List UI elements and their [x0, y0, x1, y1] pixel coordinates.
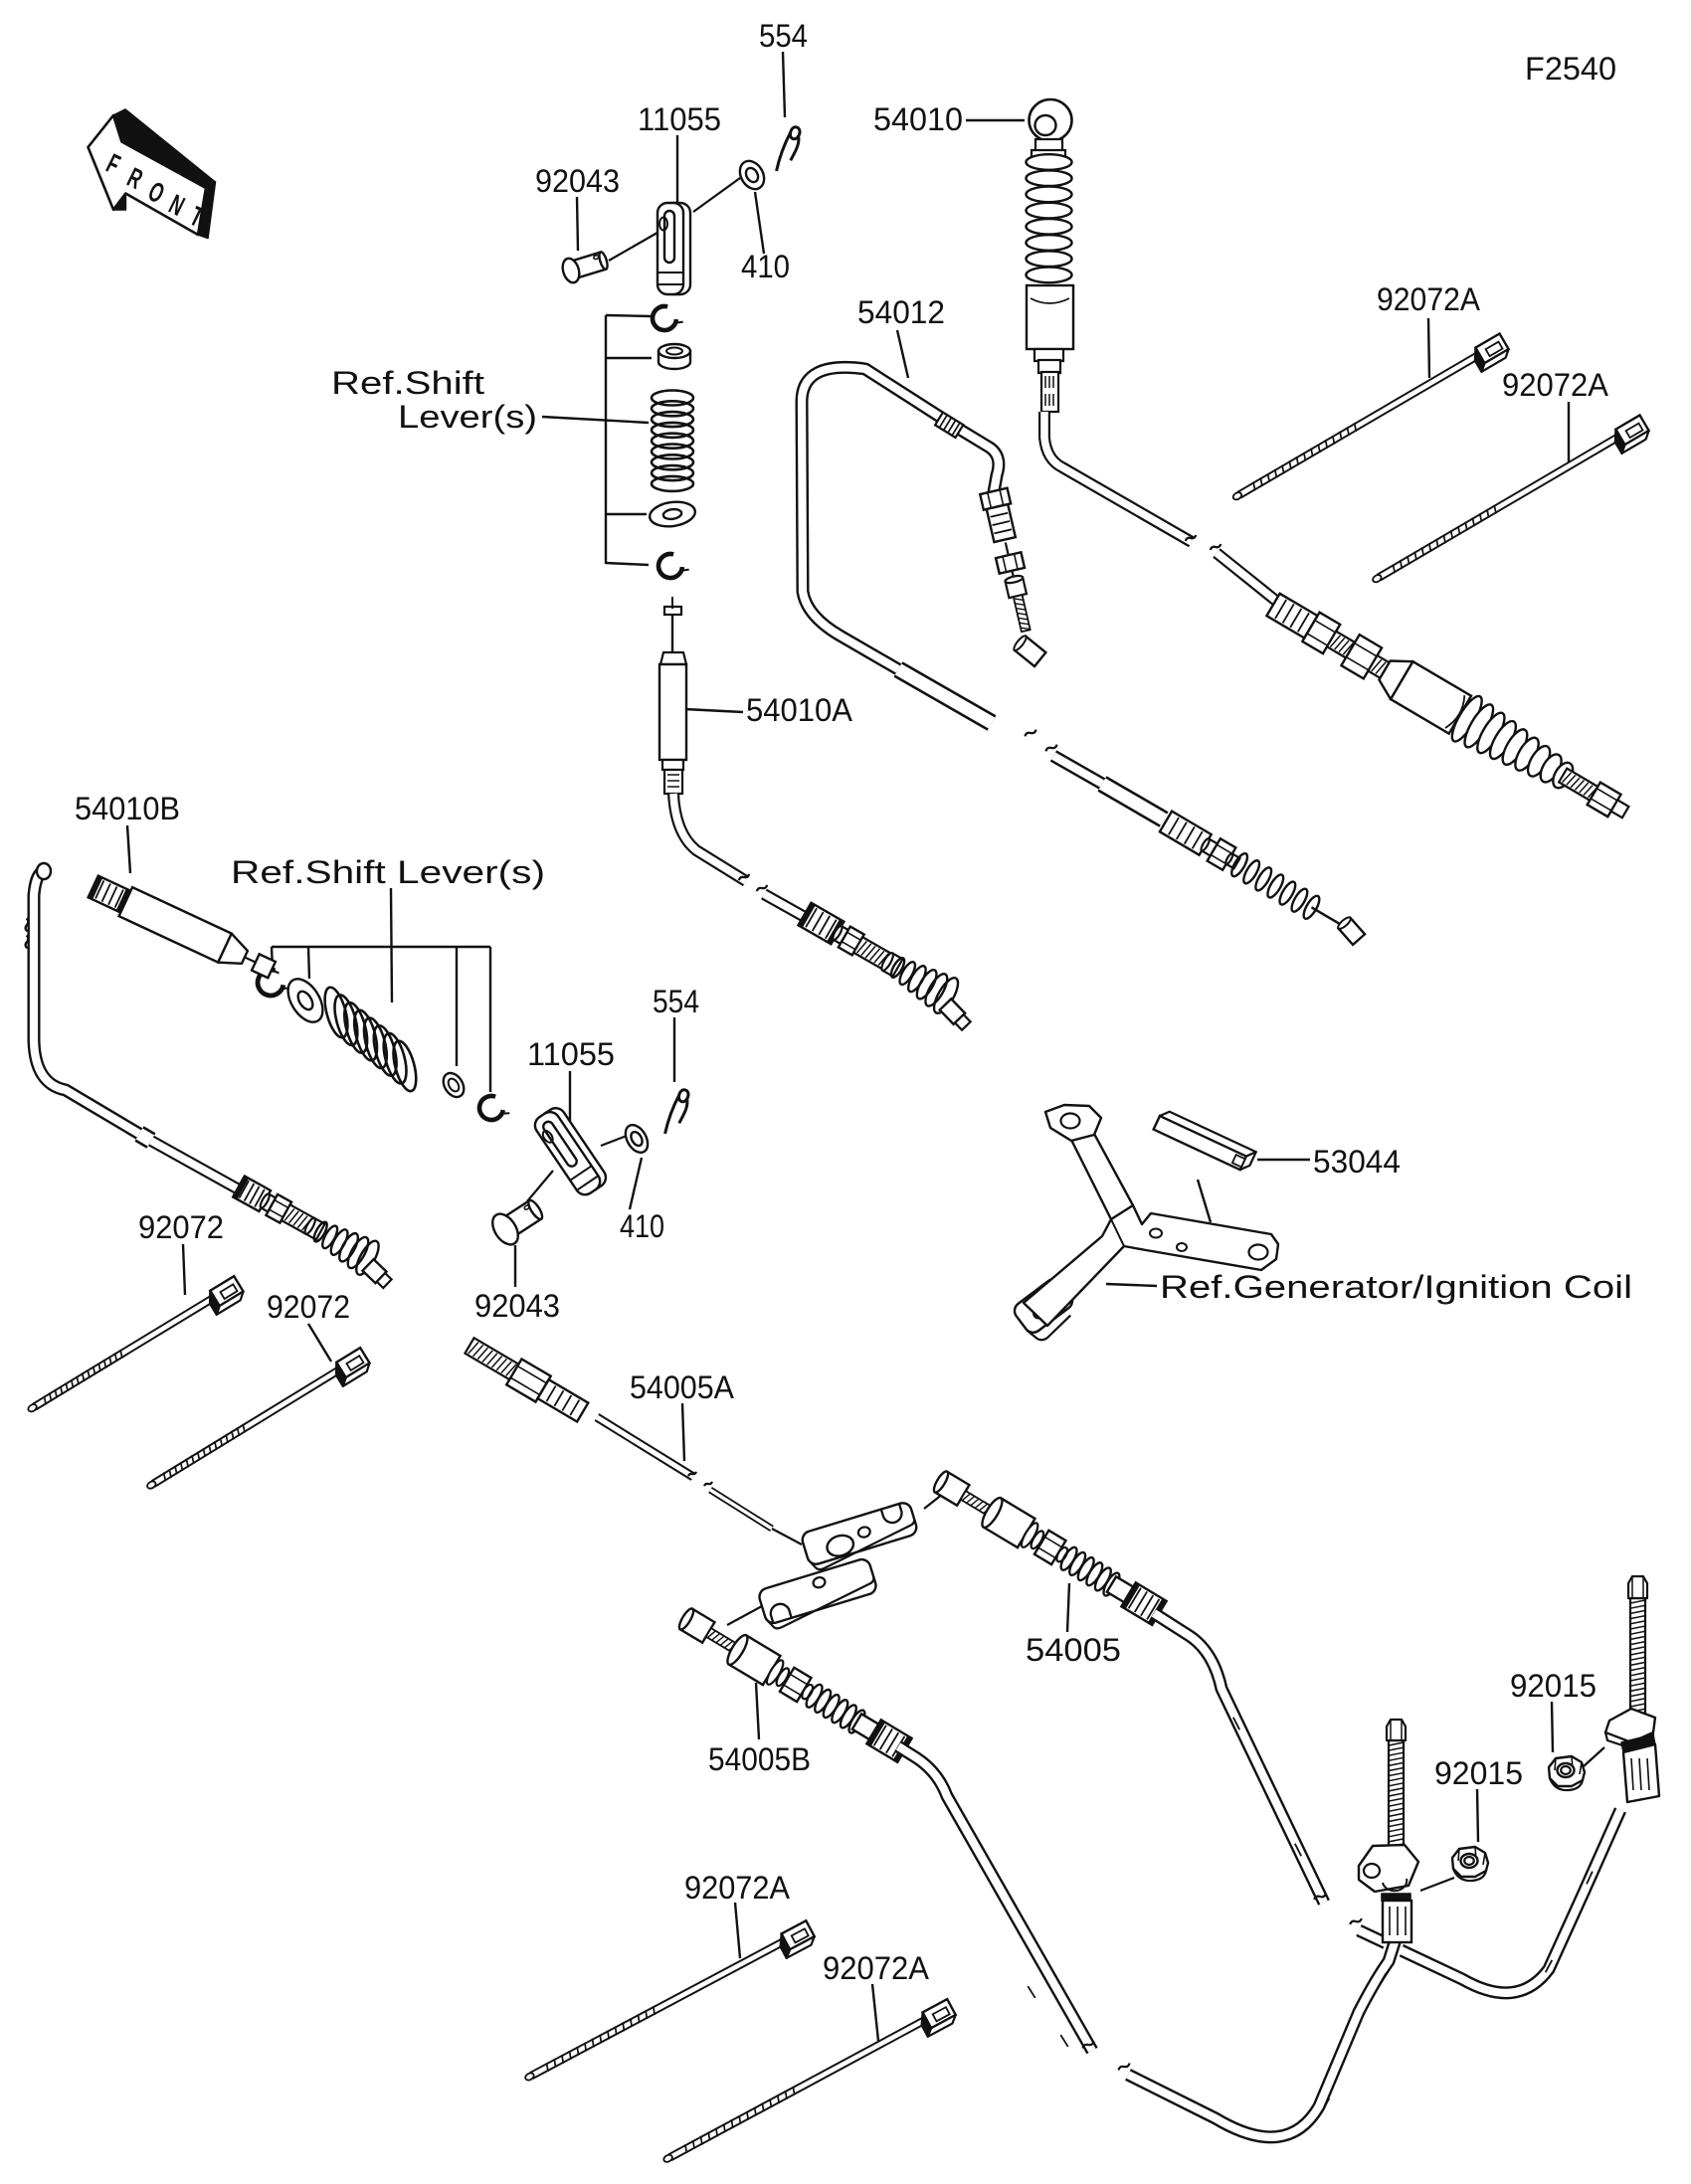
svg-text:F2540: F2540: [1525, 51, 1616, 87]
svg-text:92072A: 92072A: [1502, 367, 1609, 403]
svg-text:54005A: 54005A: [630, 1369, 735, 1405]
svg-text:54010A: 54010A: [746, 692, 853, 728]
svg-text:54005B: 54005B: [708, 1741, 811, 1777]
svg-text:11055: 11055: [527, 1036, 615, 1072]
svg-text:92072A: 92072A: [1377, 281, 1481, 317]
svg-text:410: 410: [620, 1208, 664, 1244]
svg-text:Ref.Generator/Ignition Coil: Ref.Generator/Ignition Coil: [1160, 1269, 1632, 1305]
svg-text:Ref.Shift Lever(s): Ref.Shift Lever(s): [231, 854, 545, 890]
svg-text:92043: 92043: [474, 1288, 560, 1324]
svg-text:Ref.Shift: Ref.Shift: [331, 365, 484, 401]
svg-text:92072: 92072: [138, 1209, 224, 1245]
svg-text:Lever(s): Lever(s): [398, 399, 537, 435]
svg-text:54012: 54012: [857, 294, 945, 330]
svg-text:54010B: 54010B: [75, 791, 180, 826]
svg-text:92072A: 92072A: [823, 1950, 930, 1986]
svg-text:410: 410: [741, 249, 790, 284]
svg-text:11055: 11055: [638, 101, 721, 137]
svg-text:54005: 54005: [1026, 1632, 1121, 1668]
svg-text:92015: 92015: [1510, 1668, 1597, 1704]
svg-text:554: 554: [653, 984, 699, 1019]
svg-text:554: 554: [759, 18, 808, 54]
svg-text:53044: 53044: [1313, 1144, 1401, 1180]
svg-text:92043: 92043: [535, 163, 620, 199]
svg-text:54010: 54010: [873, 101, 963, 137]
svg-text:92072: 92072: [267, 1289, 350, 1325]
svg-text:92072A: 92072A: [684, 1870, 791, 1906]
svg-text:92015: 92015: [1434, 1755, 1523, 1791]
